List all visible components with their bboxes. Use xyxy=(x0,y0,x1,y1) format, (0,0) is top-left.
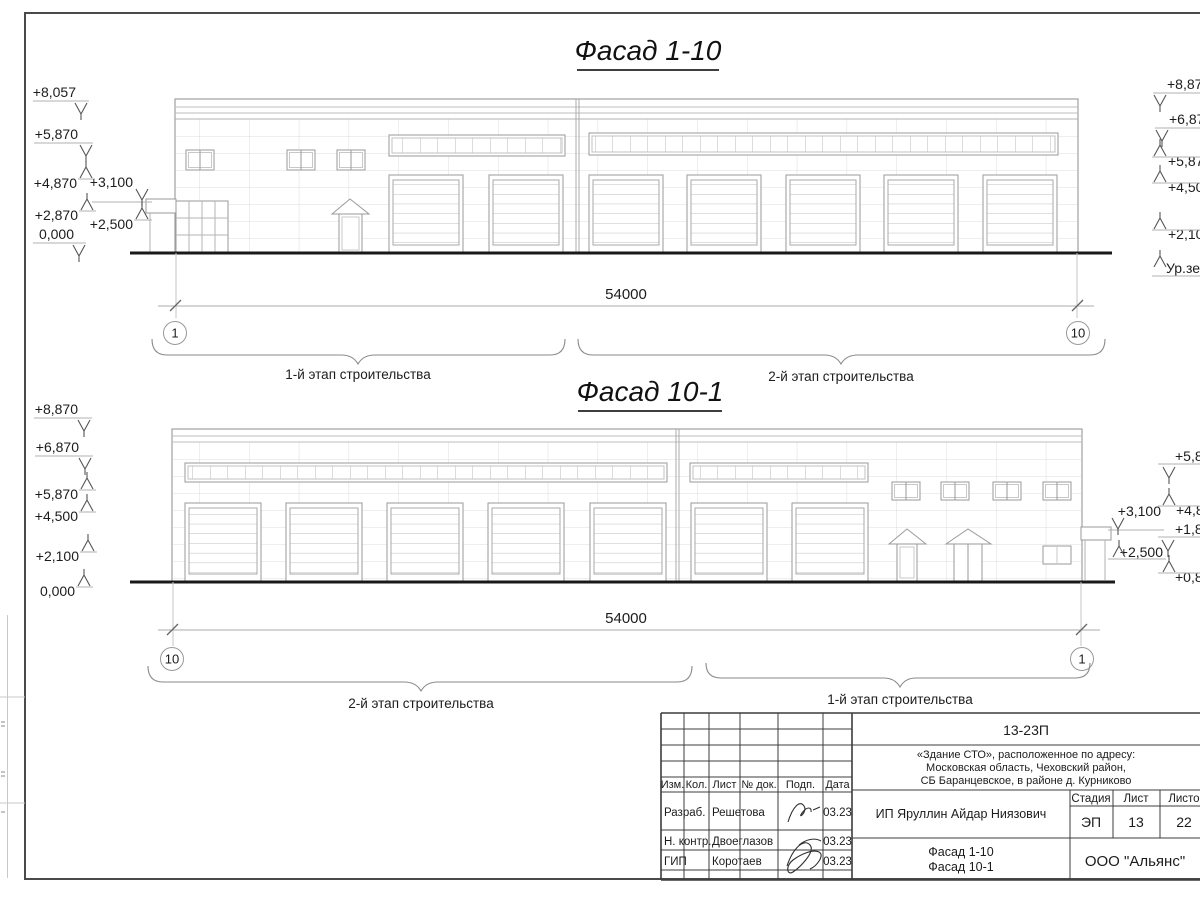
company-name: ООО "Альянс" xyxy=(1085,853,1185,870)
svg-text:1: 1 xyxy=(171,326,178,341)
ribbon-window xyxy=(589,133,1058,155)
svg-text:+2,10: +2,10 xyxy=(1168,226,1200,242)
sheet-value: 13 xyxy=(1128,814,1144,830)
sheet-header: Лист xyxy=(1124,793,1150,805)
dimension-value: 54000 xyxy=(605,286,647,303)
garage-door xyxy=(884,175,958,252)
double-window xyxy=(941,482,969,500)
stage-header: Стадия xyxy=(1071,793,1110,805)
svg-text:+5,870: +5,870 xyxy=(35,486,78,502)
svg-text:+5,87: +5,87 xyxy=(1168,153,1200,169)
double-window xyxy=(287,150,315,170)
ground-line xyxy=(130,252,1112,255)
row-date: 03.23 xyxy=(823,856,852,868)
garage-door xyxy=(489,175,563,252)
doc-number: 13-23П xyxy=(1003,722,1049,738)
garage-door xyxy=(786,175,860,252)
stage-label: 2-й этап строительства xyxy=(348,696,494,711)
double-window xyxy=(993,482,1021,500)
sheet-title-line2: Фасад 10-1 xyxy=(928,860,993,874)
signature-row: Н. контр. Двоеглазов 03.23 xyxy=(664,836,852,848)
garage-door xyxy=(387,503,463,581)
svg-text:+1,8: +1,8 xyxy=(1175,521,1200,537)
col-header-list: Лист xyxy=(713,779,737,791)
svg-text:+4,50: +4,50 xyxy=(1168,179,1200,195)
axis-bubble-10: 10 xyxy=(1067,322,1090,345)
row-date: 03.23 xyxy=(823,807,852,819)
axis-bubble-1: 1 xyxy=(164,322,187,345)
svg-text:+4,500: +4,500 xyxy=(35,508,78,524)
project-address-line2: Московская область, Чеховский район, xyxy=(926,762,1126,774)
client-name: ИП Яруллин Айдар Ниязович xyxy=(876,807,1047,821)
row-role: ГИП xyxy=(664,856,687,868)
small-window xyxy=(1043,546,1071,564)
stage-label: 1-й этап строительства xyxy=(285,367,431,382)
project-address-line1: «Здание СТО», расположенное по адресу: xyxy=(917,749,1135,761)
svg-text:+8,057: +8,057 xyxy=(33,84,76,100)
svg-text:+2,500: +2,500 xyxy=(1120,544,1163,560)
svg-text:+5,8: +5,8 xyxy=(1175,448,1200,464)
svg-text:+8,870: +8,870 xyxy=(1167,76,1200,92)
double-window xyxy=(892,482,920,500)
project-address-line3: СБ Баранцевское, в районе д. Курниково xyxy=(921,775,1132,787)
svg-text:+2,500: +2,500 xyxy=(90,216,133,232)
col-header-kol: Кол. xyxy=(686,779,708,791)
svg-text:1: 1 xyxy=(1078,652,1085,667)
double-window xyxy=(186,150,214,170)
svg-text:10: 10 xyxy=(1071,326,1085,341)
row-name: Двоеглазов xyxy=(712,836,773,848)
stage-label: 2-й этап строительства xyxy=(768,369,914,384)
row-role: Н. контр. xyxy=(664,836,711,848)
row-date: 03.23 xyxy=(823,836,852,848)
svg-text:+4,8: +4,8 xyxy=(1176,502,1200,518)
row-name: Коротаев xyxy=(712,856,762,868)
row-name: Решетова xyxy=(712,807,765,819)
sheets-header: Листов xyxy=(1168,793,1200,805)
facade-1-10-title: Фасад 1-10 xyxy=(575,35,722,66)
svg-text:+2,100: +2,100 xyxy=(36,548,79,564)
svg-text:0,000: 0,000 xyxy=(39,226,74,242)
garage-door xyxy=(792,503,868,581)
stage-label: 1-й этап строительства xyxy=(827,692,973,707)
garage-door xyxy=(590,503,666,581)
dimension-value: 54000 xyxy=(605,610,647,627)
sheets-value: 22 xyxy=(1176,814,1192,830)
svg-text:0,000: 0,000 xyxy=(40,583,75,599)
ribbon-window xyxy=(185,463,667,482)
garage-door xyxy=(488,503,564,581)
svg-text:Ур.зе: Ур.зе xyxy=(1166,260,1200,276)
svg-text:+3,100: +3,100 xyxy=(90,174,133,190)
glazed-window xyxy=(176,201,228,252)
sheet-title-line1: Фасад 1-10 xyxy=(928,845,993,859)
double-window xyxy=(1043,482,1071,500)
svg-text:+4,870: +4,870 xyxy=(34,175,77,191)
drawing-sheet: Фасад 1-10 xyxy=(0,0,1200,900)
svg-text:+0,8: +0,8 xyxy=(1175,569,1200,585)
stage-value: ЭП xyxy=(1081,814,1101,830)
garage-door xyxy=(691,503,767,581)
col-header-izm: Изм. xyxy=(661,779,685,791)
ribbon-window xyxy=(389,135,565,156)
building-elevation-10-1 xyxy=(130,429,1115,584)
double-window xyxy=(337,150,365,170)
svg-text:10: 10 xyxy=(165,652,179,667)
garage-door xyxy=(286,503,362,581)
signature-row: Разраб. Решетова 03.23 xyxy=(664,807,852,819)
svg-text:+5,870: +5,870 xyxy=(35,126,78,142)
garage-door xyxy=(983,175,1057,252)
col-header-doc: № док. xyxy=(741,779,776,791)
svg-text:+2,870: +2,870 xyxy=(35,207,78,223)
garage-door xyxy=(389,175,463,252)
garage-door xyxy=(589,175,663,252)
col-header-data: Дата xyxy=(825,779,850,791)
ground-line xyxy=(130,581,1115,584)
svg-text:+6,870: +6,870 xyxy=(1169,111,1200,127)
garage-door xyxy=(185,503,261,581)
facade-drawing: Фасад 1-10 xyxy=(0,0,1200,900)
svg-text:+6,870: +6,870 xyxy=(36,439,79,455)
garage-door xyxy=(687,175,761,252)
svg-text:+3,100: +3,100 xyxy=(1118,503,1161,519)
ribbon-window xyxy=(690,463,868,482)
axis-bubble-10: 10 xyxy=(161,648,184,671)
svg-text:+8,870: +8,870 xyxy=(35,401,78,417)
col-header-podp: Подп. xyxy=(786,779,815,791)
building-elevation-1-10 xyxy=(130,99,1112,255)
facade-10-1-title: Фасад 10-1 xyxy=(577,376,724,407)
row-role: Разраб. xyxy=(664,807,705,819)
